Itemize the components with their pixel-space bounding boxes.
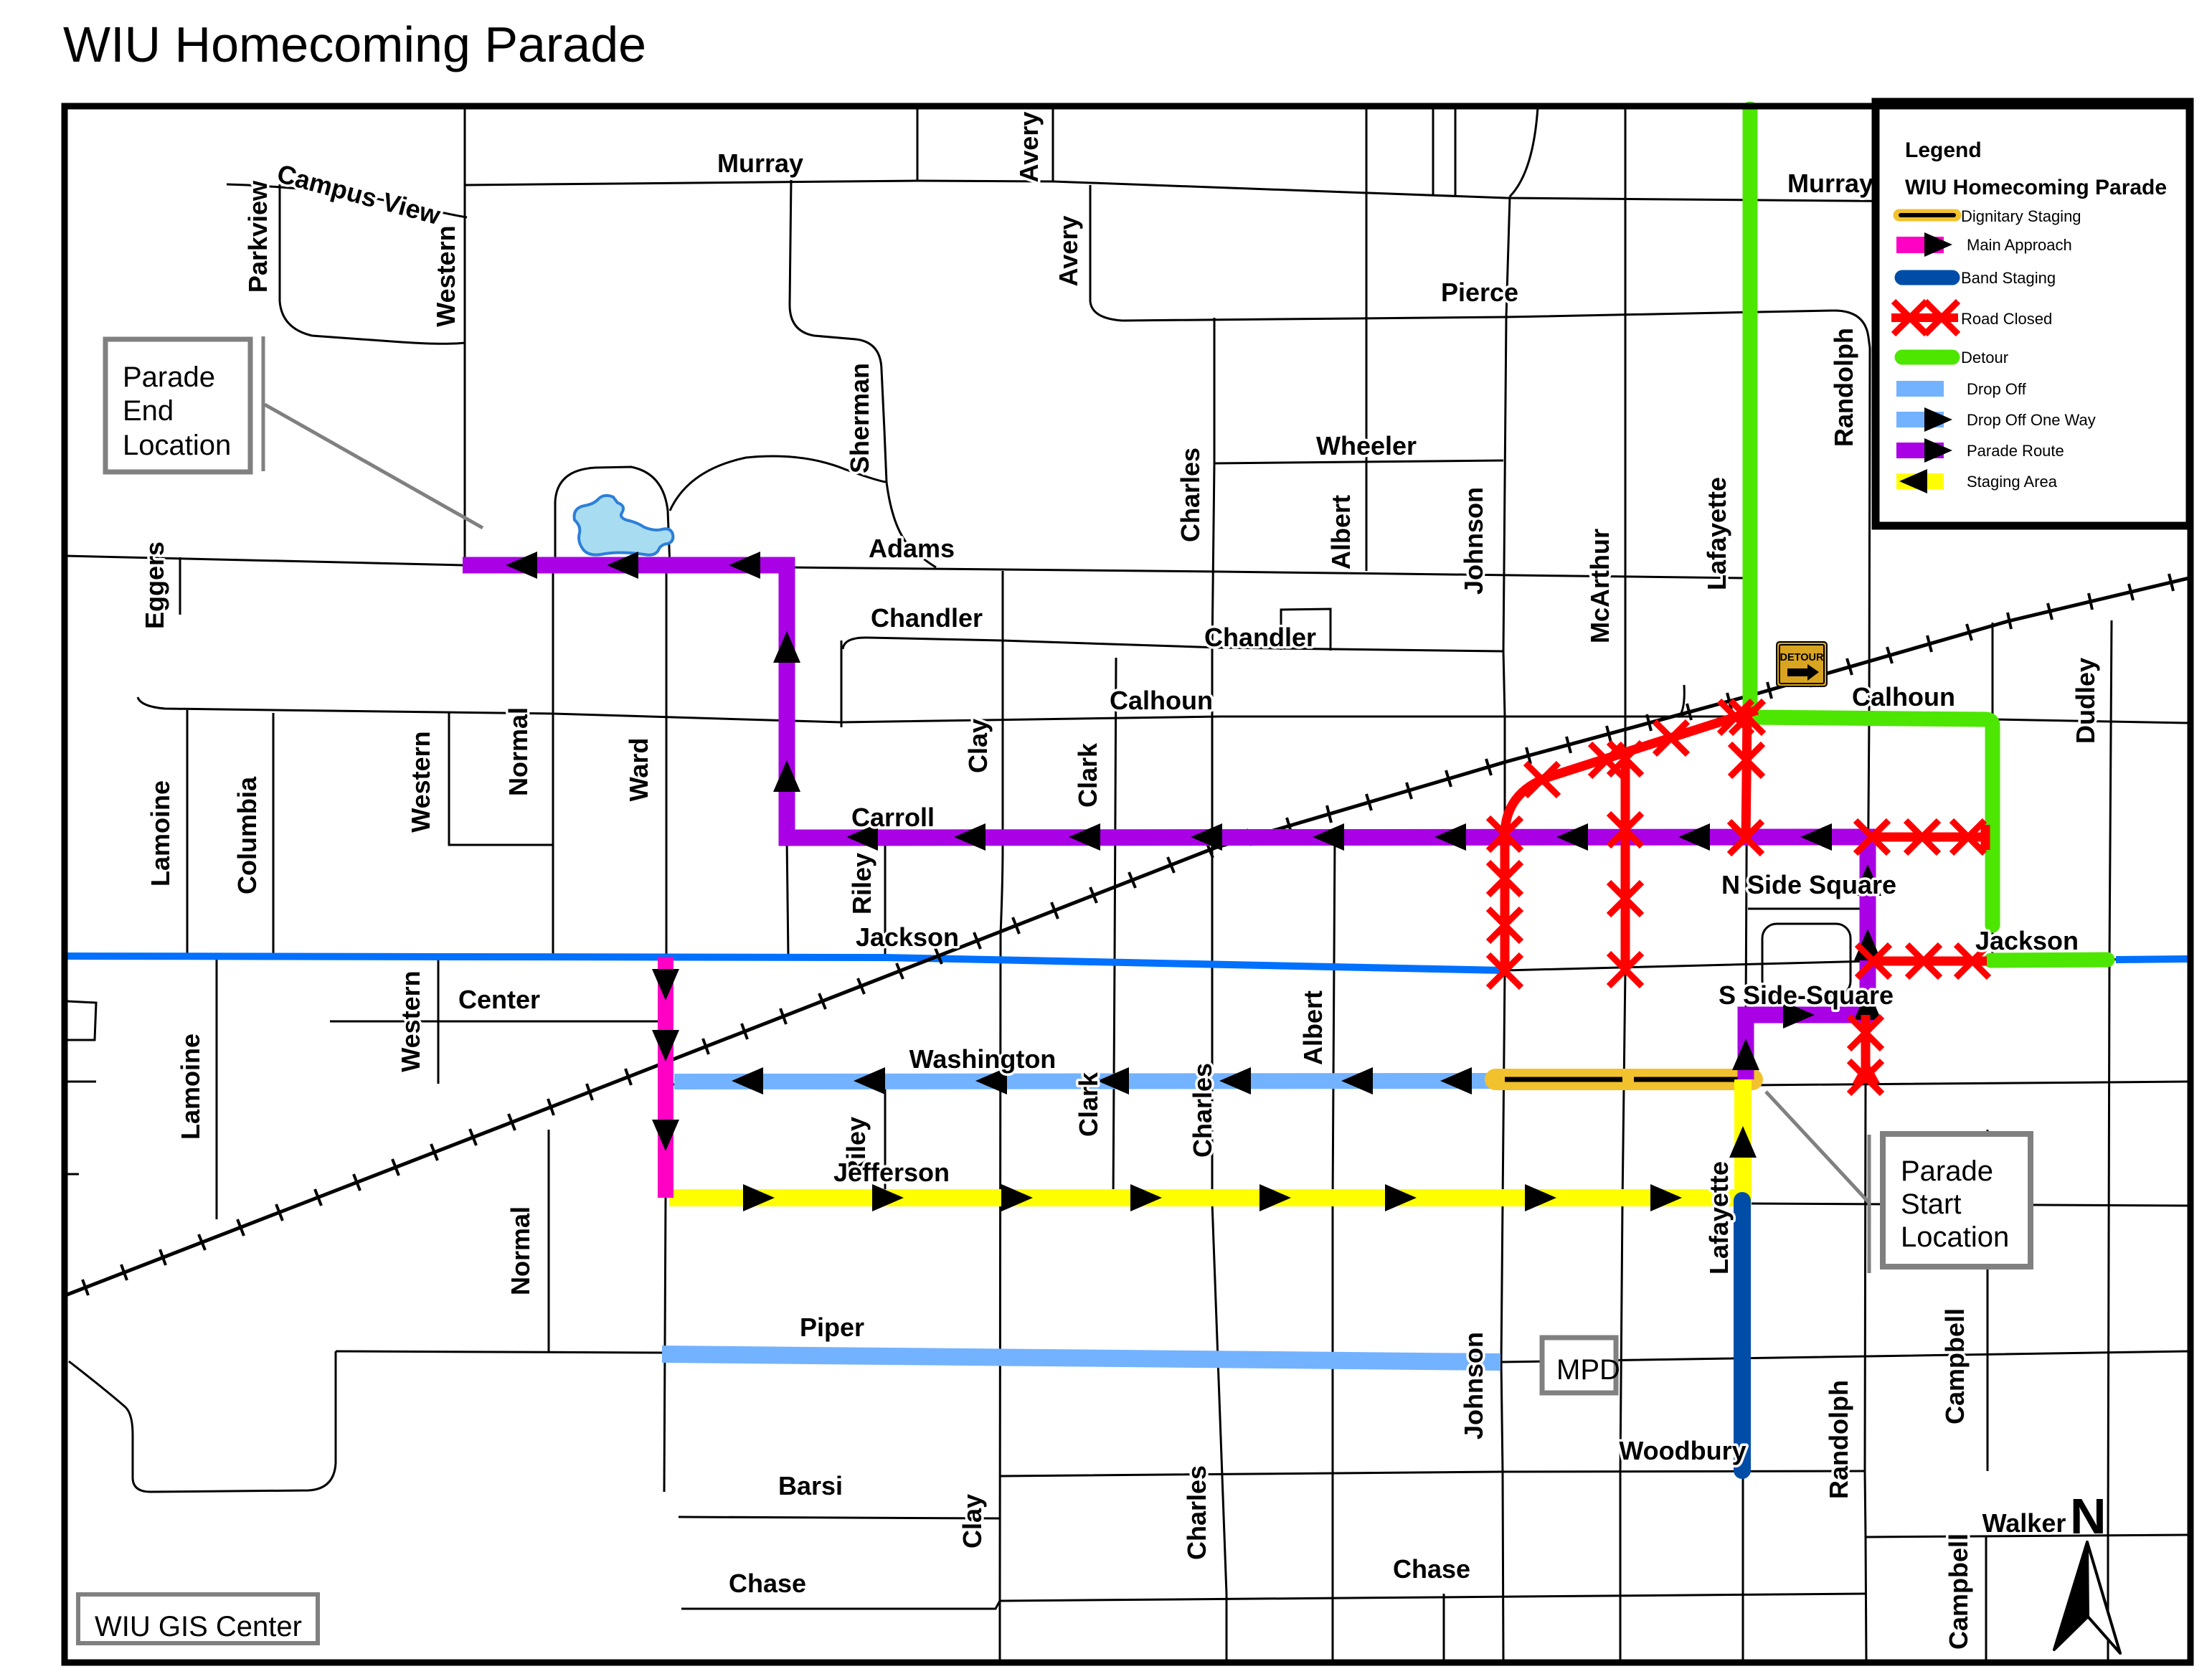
svg-text:Randolph: Randolph — [1824, 1380, 1853, 1499]
svg-text:Murray: Murray — [717, 148, 803, 178]
svg-text:Parade: Parade — [1901, 1155, 1993, 1187]
svg-text:Pierce: Pierce — [1441, 278, 1518, 307]
svg-text:Randolph: Randolph — [1829, 328, 1858, 447]
svg-text:Legend: Legend — [1905, 138, 1982, 162]
svg-text:Sherman: Sherman — [845, 363, 874, 473]
svg-text:Center: Center — [458, 985, 540, 1014]
svg-text:Charles: Charles — [1176, 448, 1205, 542]
svg-text:Avery: Avery — [1014, 112, 1044, 183]
svg-text:Road Closed: Road Closed — [1961, 310, 2052, 328]
svg-text:Avery: Avery — [1054, 216, 1083, 287]
svg-text:Jefferson: Jefferson — [833, 1158, 950, 1187]
svg-text:Campbell: Campbell — [1944, 1533, 1973, 1650]
svg-text:Chandler: Chandler — [871, 603, 983, 633]
svg-text:Western: Western — [431, 225, 460, 326]
svg-text:Chase: Chase — [1393, 1554, 1470, 1584]
svg-text:Staging Area: Staging Area — [1967, 473, 2058, 491]
svg-text:Jackson: Jackson — [1975, 926, 2079, 955]
svg-text:Eggers: Eggers — [140, 542, 169, 629]
svg-text:Chase: Chase — [729, 1569, 806, 1598]
svg-text:DETOUR: DETOUR — [1780, 652, 1824, 663]
svg-text:Location: Location — [1901, 1221, 2009, 1253]
svg-text:Piper: Piper — [800, 1313, 864, 1342]
svg-text:Drop Off One Way: Drop Off One Way — [1967, 411, 2096, 429]
svg-text:Riley: Riley — [847, 853, 876, 914]
svg-text:Jackson: Jackson — [856, 922, 959, 952]
svg-text:Western: Western — [406, 731, 435, 832]
svg-text:S Side-Square: S Side-Square — [1719, 980, 1894, 1010]
svg-text:Johnson: Johnson — [1459, 487, 1488, 595]
svg-text:Wheeler: Wheeler — [1316, 431, 1417, 460]
svg-text:Calhoun: Calhoun — [1852, 682, 1955, 711]
svg-text:MPD: MPD — [1556, 1354, 1620, 1386]
svg-text:Dignitary Staging: Dignitary Staging — [1961, 207, 2081, 225]
svg-text:Drop Off: Drop Off — [1967, 380, 2027, 398]
svg-text:Band Staging: Band Staging — [1961, 269, 2056, 287]
svg-text:Charles: Charles — [1182, 1465, 1211, 1560]
svg-text:Washington: Washington — [909, 1044, 1057, 1074]
svg-text:Adams: Adams — [869, 534, 955, 563]
svg-text:Ward: Ward — [624, 738, 653, 802]
svg-text:Clay: Clay — [958, 1494, 987, 1549]
svg-text:Start: Start — [1901, 1188, 1961, 1220]
svg-text:Western: Western — [396, 970, 425, 1072]
svg-text:WIU GIS Center: WIU GIS Center — [95, 1611, 302, 1642]
svg-text:Charles: Charles — [1188, 1063, 1217, 1158]
svg-text:Murray: Murray — [1787, 169, 1873, 198]
svg-text:Lafayette: Lafayette — [1702, 477, 1731, 590]
svg-text:Lafayette: Lafayette — [1704, 1161, 1734, 1275]
svg-text:Columbia: Columbia — [232, 776, 262, 894]
svg-text:Clark: Clark — [1073, 742, 1102, 808]
svg-text:Parkview: Parkview — [243, 180, 273, 293]
svg-text:WIU Homecoming Parade: WIU Homecoming Parade — [63, 16, 646, 72]
svg-text:Campbell: Campbell — [1940, 1308, 1970, 1424]
svg-text:Dudley: Dudley — [2071, 658, 2100, 744]
svg-text:N Side Square: N Side Square — [1721, 870, 1896, 899]
svg-text:Clay: Clay — [963, 719, 993, 773]
svg-text:WIU Homecoming Parade: WIU Homecoming Parade — [1905, 176, 2167, 199]
svg-text:Location: Location — [123, 430, 231, 461]
svg-text:Parade Route: Parade Route — [1967, 442, 2064, 460]
svg-text:Lamoine: Lamoine — [146, 780, 175, 886]
svg-text:Barsi: Barsi — [778, 1471, 843, 1500]
svg-text:Clark: Clark — [1074, 1072, 1103, 1137]
svg-text:Carroll: Carroll — [851, 803, 935, 832]
svg-text:Albert: Albert — [1298, 990, 1328, 1065]
svg-text:Johnson: Johnson — [1459, 1332, 1488, 1439]
svg-text:Woodbury: Woodbury — [1619, 1436, 1746, 1465]
svg-text:Albert: Albert — [1326, 495, 1356, 569]
svg-text:Chandler: Chandler — [1204, 623, 1316, 652]
svg-text:Main Approach: Main Approach — [1967, 236, 2072, 254]
svg-text:End: End — [123, 395, 174, 427]
svg-text:N: N — [2070, 1488, 2107, 1544]
svg-text:Normal: Normal — [506, 1206, 535, 1295]
svg-text:Parade: Parade — [123, 361, 215, 393]
svg-text:McArthur: McArthur — [1585, 529, 1615, 643]
svg-text:Normal: Normal — [504, 707, 533, 796]
svg-text:Walker: Walker — [1982, 1508, 2066, 1538]
svg-text:Lamoine: Lamoine — [176, 1034, 205, 1140]
svg-text:Detour: Detour — [1961, 349, 2008, 367]
svg-text:Calhoun: Calhoun — [1110, 686, 1213, 715]
